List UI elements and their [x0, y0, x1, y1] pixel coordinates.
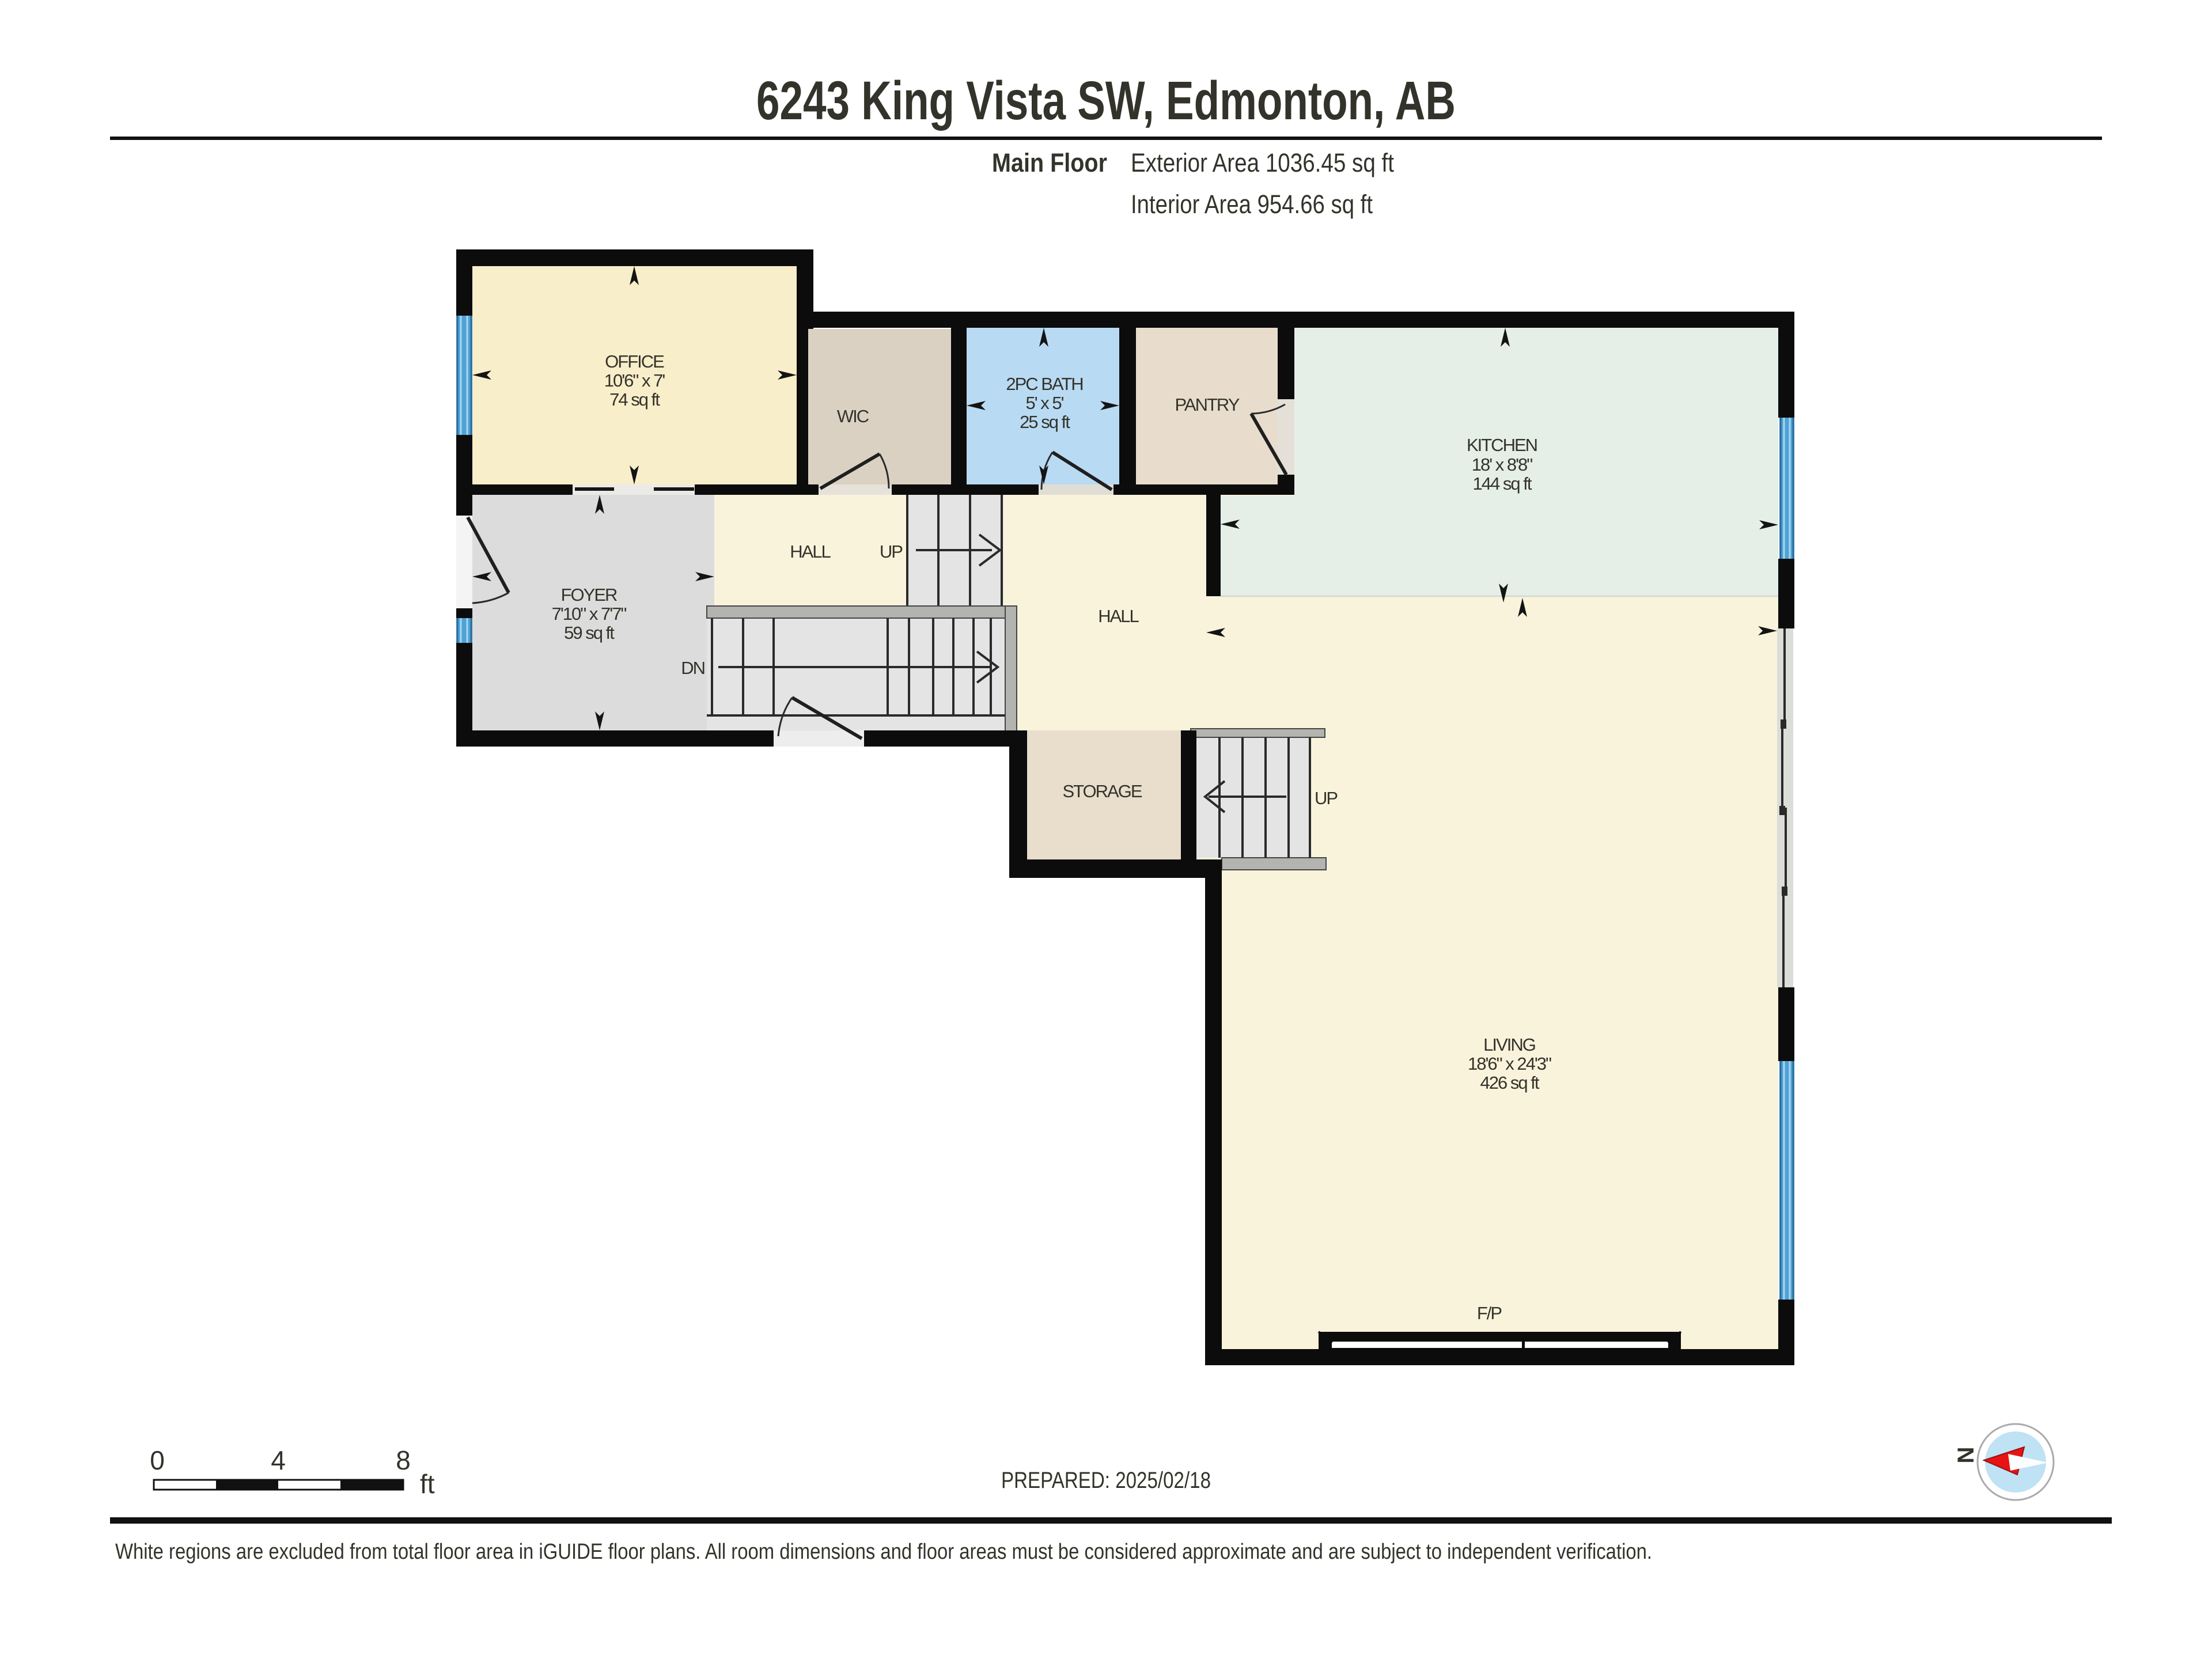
svg-text:Interior Area 954.66 sq ft: Interior Area 954.66 sq ft — [1131, 190, 1373, 219]
svg-text:426 sq ft: 426 sq ft — [1480, 1073, 1540, 1093]
svg-text:FOYER: FOYER — [561, 585, 617, 605]
svg-text:STORAGE: STORAGE — [1062, 781, 1142, 801]
svg-text:18' x 8'8": 18' x 8'8" — [1472, 454, 1533, 475]
svg-text:59 sq ft: 59 sq ft — [564, 623, 615, 643]
svg-text:PANTRY: PANTRY — [1175, 395, 1240, 415]
svg-text:F/P: F/P — [1477, 1303, 1502, 1323]
svg-text:KITCHEN: KITCHEN — [1467, 435, 1537, 455]
svg-text:UP: UP — [880, 541, 903, 562]
svg-text:HALL: HALL — [790, 541, 831, 562]
svg-text:Exterior Area 1036.45 sq ft: Exterior Area 1036.45 sq ft — [1131, 148, 1394, 177]
svg-text:WIC: WIC — [837, 406, 869, 426]
svg-text:PREPARED: 2025/02/18: PREPARED: 2025/02/18 — [1001, 1468, 1211, 1493]
svg-text:25 sq ft: 25 sq ft — [1020, 412, 1070, 432]
svg-text:144 sq ft: 144 sq ft — [1473, 474, 1532, 494]
svg-text:10'6" x 7': 10'6" x 7' — [604, 370, 665, 391]
svg-text:18'6" x 24'3": 18'6" x 24'3" — [1468, 1054, 1551, 1074]
svg-text:UP: UP — [1315, 788, 1338, 808]
svg-text:8: 8 — [396, 1445, 411, 1475]
svg-text:Main Floor: Main Floor — [992, 148, 1107, 177]
svg-text:DN: DN — [681, 658, 704, 678]
svg-text:White regions are excluded fro: White regions are excluded from total fl… — [115, 1540, 1652, 1564]
svg-text:2PC BATH: 2PC BATH — [1006, 374, 1082, 394]
svg-text:5' x 5': 5' x 5' — [1025, 393, 1063, 413]
svg-text:4: 4 — [271, 1445, 286, 1475]
svg-text:LIVING: LIVING — [1483, 1035, 1535, 1055]
svg-text:6243 King Vista SW, Edmonton,: 6243 King Vista SW, Edmonton, AB — [756, 70, 1456, 131]
svg-text:HALL: HALL — [1098, 606, 1139, 626]
svg-text:N: N — [1953, 1447, 1979, 1464]
svg-text:0: 0 — [150, 1445, 165, 1475]
svg-text:74 sq ft: 74 sq ft — [609, 389, 660, 410]
svg-text:OFFICE: OFFICE — [605, 351, 664, 372]
svg-text:7'10" x 7'7": 7'10" x 7'7" — [552, 604, 627, 624]
svg-text:ft: ft — [420, 1469, 435, 1499]
